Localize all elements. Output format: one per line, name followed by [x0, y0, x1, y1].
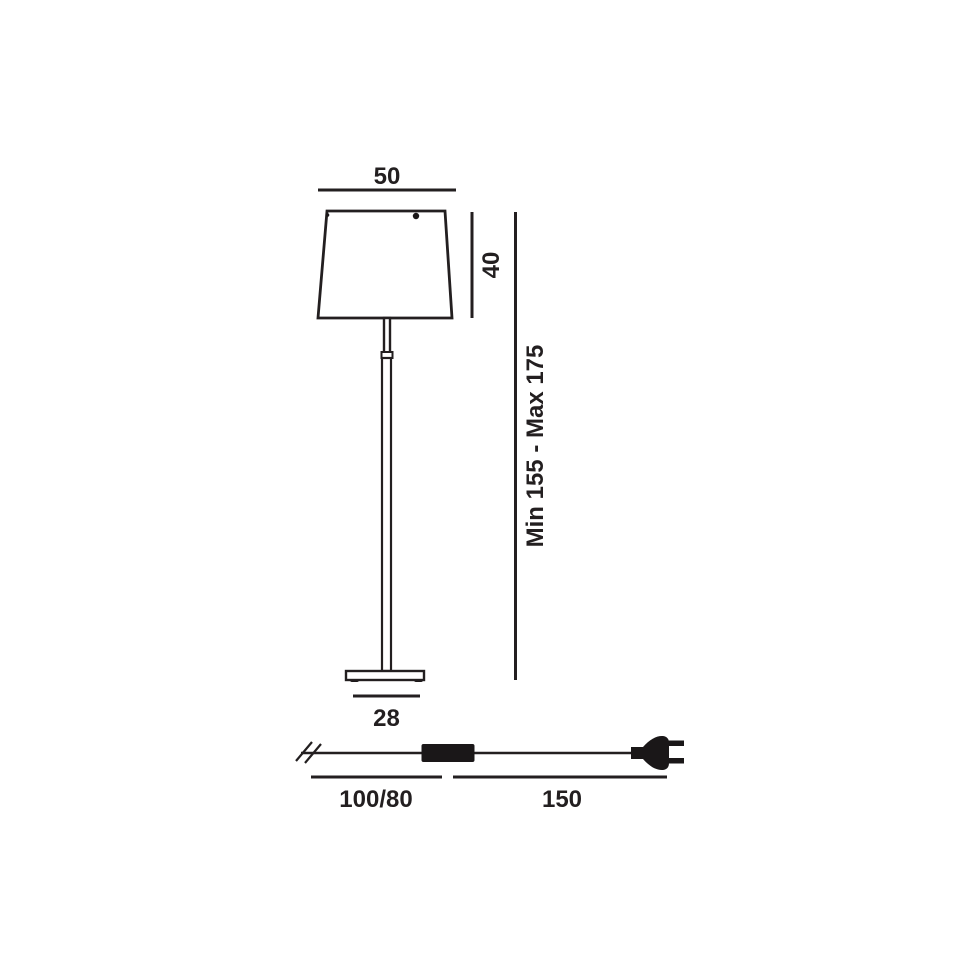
- power-cable: [296, 736, 684, 770]
- shade-screw-dot-icon: [413, 213, 419, 219]
- label-base-width: 28: [373, 705, 400, 732]
- inline-switch: [422, 744, 475, 762]
- plug-prong-bottom: [668, 758, 684, 764]
- plug-body: [643, 736, 669, 770]
- label-shade-height: 40: [478, 252, 505, 279]
- plug-icon: [631, 736, 684, 770]
- lamp-shade-outline: [318, 211, 452, 318]
- stem-lower-tube: [382, 358, 391, 671]
- lamp-stem: [382, 318, 393, 671]
- lamp-base: [346, 671, 424, 682]
- label-cable-length-plug-end: 150: [542, 786, 582, 813]
- shade-corner-dot-icon: [326, 213, 330, 217]
- label-total-height-range: Min 155 - Max 175: [522, 345, 549, 548]
- diagram-drawing: 50 40 Min 155 - Max 175 28 100/80 150: [0, 0, 960, 960]
- label-shade-width: 50: [374, 163, 401, 190]
- lamp-dimension-diagram: 50 40 Min 155 - Max 175 28 100/80 150: [0, 0, 960, 960]
- stem-upper-rod: [384, 318, 390, 353]
- base-plate-outline: [346, 671, 424, 680]
- plug-prong-top: [668, 741, 684, 747]
- plug-neck: [631, 747, 644, 759]
- label-cable-length-wire: 100/80: [339, 786, 412, 813]
- lamp-shade: [318, 211, 452, 318]
